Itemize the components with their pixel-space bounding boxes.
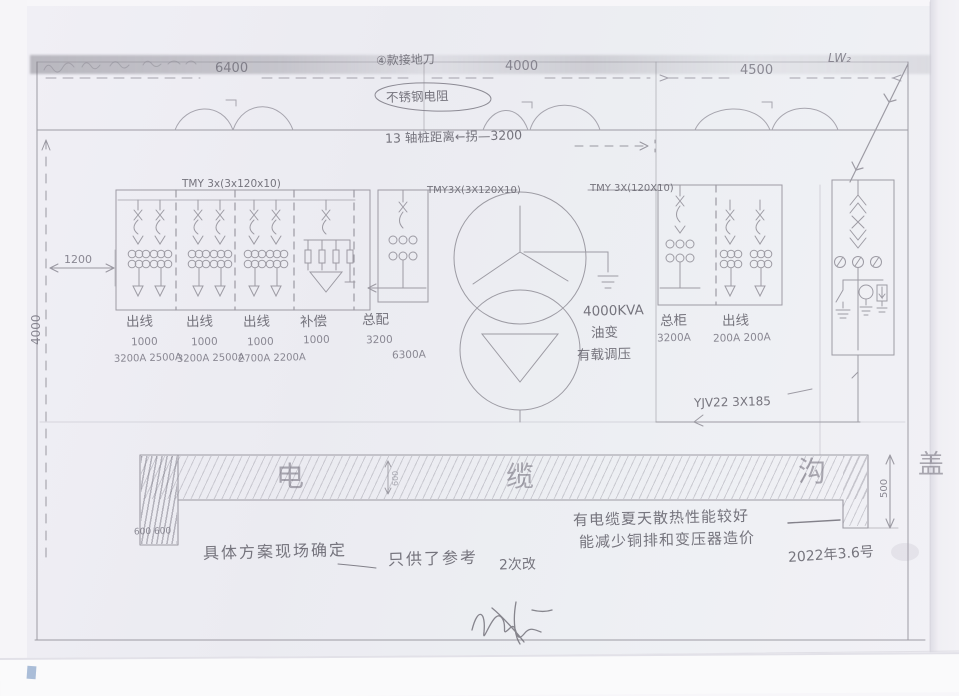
transformer-type: 油变 [591, 326, 618, 341]
bay2-size: 1000 [191, 337, 218, 349]
hv-incomer-name: 总柜 [660, 314, 687, 329]
scanned-hand-drawn-electrical-plan: 6400 4000 4500 LW₂ ④款接地刀 不锈钢电阻 13 轴桩距离←拐… [0, 0, 959, 696]
bay5-amps: 6300A [392, 350, 426, 362]
signature-scribble [472, 602, 552, 644]
hv-switchboard [658, 185, 782, 305]
dimension-room-depth: 4000 [30, 314, 43, 345]
trench-char-dian: 电 [276, 462, 304, 491]
trench-char-gai: 盖 [918, 452, 944, 479]
top-wall-line [37, 100, 908, 130]
bay3-amps: 2700A 2200A [238, 353, 306, 365]
bay4-name: 补偿 [300, 315, 327, 330]
bay1-amps: 3200A 2500A [114, 353, 182, 365]
hv-feeder-amps: 200A 200A [713, 332, 771, 345]
transformer-hv-busbar-label: TMY 3X(120X10) [590, 184, 674, 195]
transformer-regulation: 有载调压 [577, 347, 631, 363]
pt-metering-panel [832, 180, 894, 422]
trench-char-gou: 沟 [798, 457, 826, 486]
note-revision: 2次改 [499, 558, 536, 574]
transformer-rating: 4000KVA [583, 303, 644, 319]
bay3-name: 出线 [243, 315, 270, 330]
bay1-size: 1000 [131, 337, 158, 349]
spacing-dimension-arrow [575, 140, 655, 152]
incoming-line [850, 64, 908, 182]
lv-incomer-bay [368, 190, 428, 302]
bay3-size: 1000 [247, 337, 274, 349]
lv-bus-label: TMY 3x(3x120x10) [182, 179, 281, 190]
compensation-bay-symbol [304, 200, 355, 292]
blue-scan-mark [27, 666, 37, 680]
hv-feeder-name: 出线 [722, 314, 749, 329]
lv-switchboard [116, 190, 370, 310]
spacing-note: 13 轴桩距离←拐—3200 [385, 128, 522, 145]
bay1-name: 出线 [126, 315, 153, 330]
bay4-size: 1000 [303, 335, 330, 347]
bay5-name: 总配 [362, 313, 389, 328]
trench-depth-dim: 500 [880, 479, 891, 498]
trench-char-lan: 缆 [506, 462, 534, 491]
left-vertical-dimension [42, 140, 50, 558]
hv-incomer-amps: 3200A [657, 333, 691, 345]
paper-bottom-edge [0, 652, 959, 696]
transformer-lv-busbar-label: TMY3X(3X120X10) [427, 186, 521, 197]
note-reference: 只供了参考 [388, 550, 478, 569]
note-plan: 具体方案现场确定 [203, 542, 347, 563]
scanner-smear-band [30, 55, 930, 74]
bay2-name: 出线 [186, 315, 213, 330]
bay5-size: 3200 [366, 335, 393, 347]
trench-width-note: 600 600 [134, 528, 171, 538]
cable-designation: YJV22 3X185 [694, 395, 771, 410]
dimension-1200: 1200 [64, 254, 92, 266]
trench-inner-dim: 600 [392, 471, 400, 486]
scan-blob [891, 543, 919, 561]
oval-note: 不锈钢电阻 [386, 89, 449, 104]
bay2-amps: 3200A 2500A [177, 353, 245, 365]
